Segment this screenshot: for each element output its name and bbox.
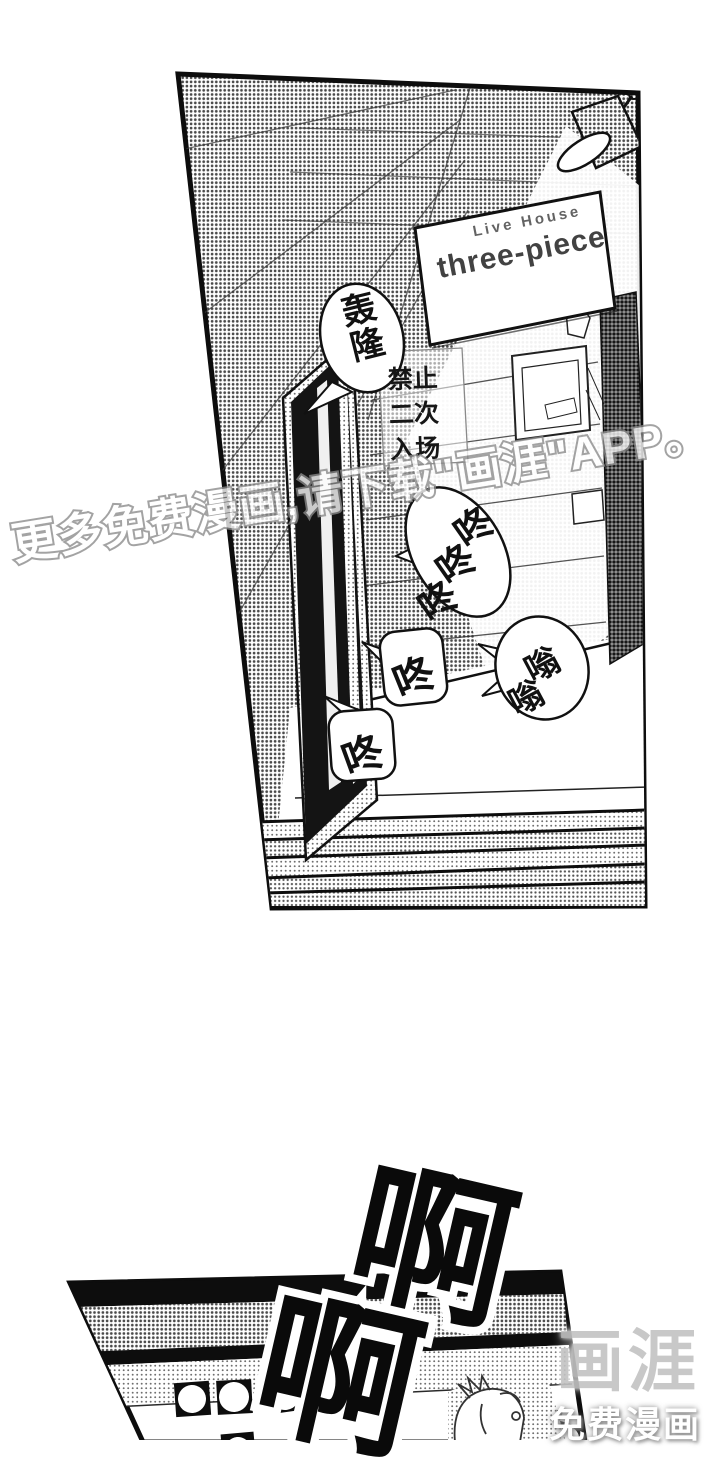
sfx-scream-2: 啊 啊: [242, 1282, 434, 1474]
wall-sign-row: 禁止: [387, 361, 462, 399]
huaya-tagline: 免费漫画: [549, 1396, 701, 1448]
huaya-logo: 画涯: [556, 1306, 700, 1405]
wall-sign-row: 二次: [388, 396, 463, 434]
